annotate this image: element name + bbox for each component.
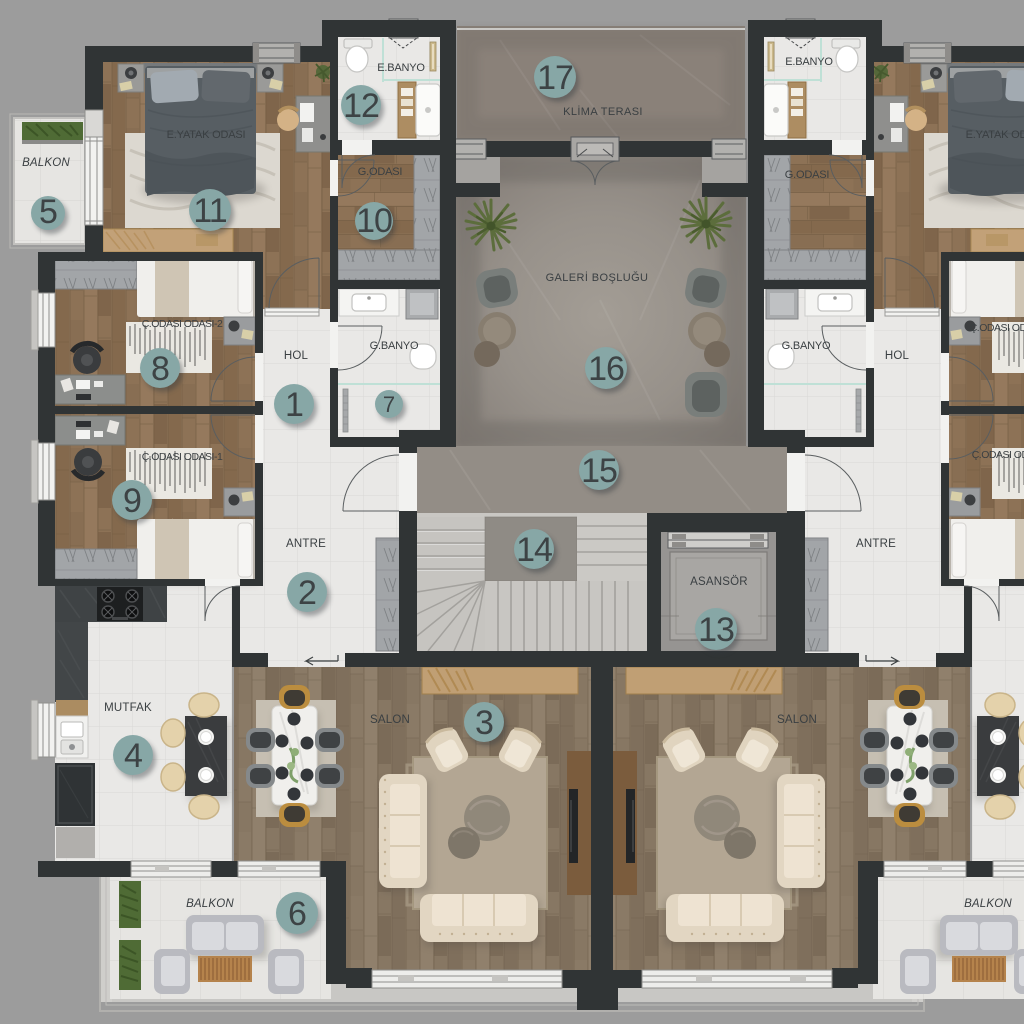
svg-text:G.BANYO: G.BANYO [782, 340, 831, 352]
svg-text:G.ODASI: G.ODASI [358, 166, 403, 178]
svg-text:13: 13 [698, 611, 734, 649]
svg-text:2: 2 [298, 574, 316, 612]
svg-text:E.YATAK ODASI: E.YATAK ODASI [167, 129, 246, 141]
svg-text:Ç.ODASI ODASI-2: Ç.ODASI ODASI-2 [970, 322, 1024, 334]
svg-text:3: 3 [475, 704, 493, 742]
svg-text:Ç.ODASI ODASI-1: Ç.ODASI ODASI-1 [142, 451, 223, 463]
svg-text:9: 9 [123, 482, 141, 520]
svg-text:ANTRE: ANTRE [286, 538, 326, 550]
svg-text:E.BANYO: E.BANYO [785, 56, 833, 68]
svg-text:7: 7 [383, 392, 395, 417]
svg-text:E.YATAK ODASI: E.YATAK ODASI [966, 129, 1024, 141]
svg-text:Ç.ODASI ODASI-1: Ç.ODASI ODASI-1 [972, 449, 1024, 461]
svg-text:8: 8 [151, 350, 169, 388]
svg-text:Ç.ODASI ODASI-2: Ç.ODASI ODASI-2 [142, 318, 223, 330]
svg-text:ASANSÖR: ASANSÖR [690, 576, 748, 588]
svg-text:4: 4 [124, 737, 142, 775]
svg-text:GALERİ BOŞLUĞU: GALERİ BOŞLUĞU [546, 271, 649, 284]
svg-text:HOL: HOL [284, 350, 309, 362]
svg-text:5: 5 [39, 193, 57, 231]
svg-text:1: 1 [285, 386, 303, 424]
svg-text:SALON: SALON [370, 714, 410, 726]
svg-text:17: 17 [537, 59, 573, 97]
svg-text:16: 16 [588, 350, 624, 388]
svg-text:11: 11 [193, 192, 226, 230]
svg-text:BALKON: BALKON [22, 157, 70, 169]
svg-text:KLİMA TERASI: KLİMA TERASI [563, 105, 643, 118]
svg-text:G.BANYO: G.BANYO [370, 340, 419, 352]
svg-text:10: 10 [356, 202, 392, 240]
svg-text:BALKON: BALKON [186, 898, 234, 910]
svg-text:BALKON: BALKON [964, 898, 1012, 910]
svg-text:6: 6 [288, 895, 306, 933]
svg-text:MUTFAK: MUTFAK [104, 702, 152, 714]
svg-text:SALON: SALON [777, 714, 817, 726]
svg-text:E.BANYO: E.BANYO [377, 62, 425, 74]
svg-text:HOL: HOL [885, 350, 910, 362]
svg-text:14: 14 [516, 531, 552, 569]
svg-text:ANTRE: ANTRE [856, 538, 896, 550]
svg-text:15: 15 [581, 452, 617, 490]
svg-text:G.ODASI: G.ODASI [785, 169, 830, 181]
svg-text:12: 12 [343, 87, 379, 125]
